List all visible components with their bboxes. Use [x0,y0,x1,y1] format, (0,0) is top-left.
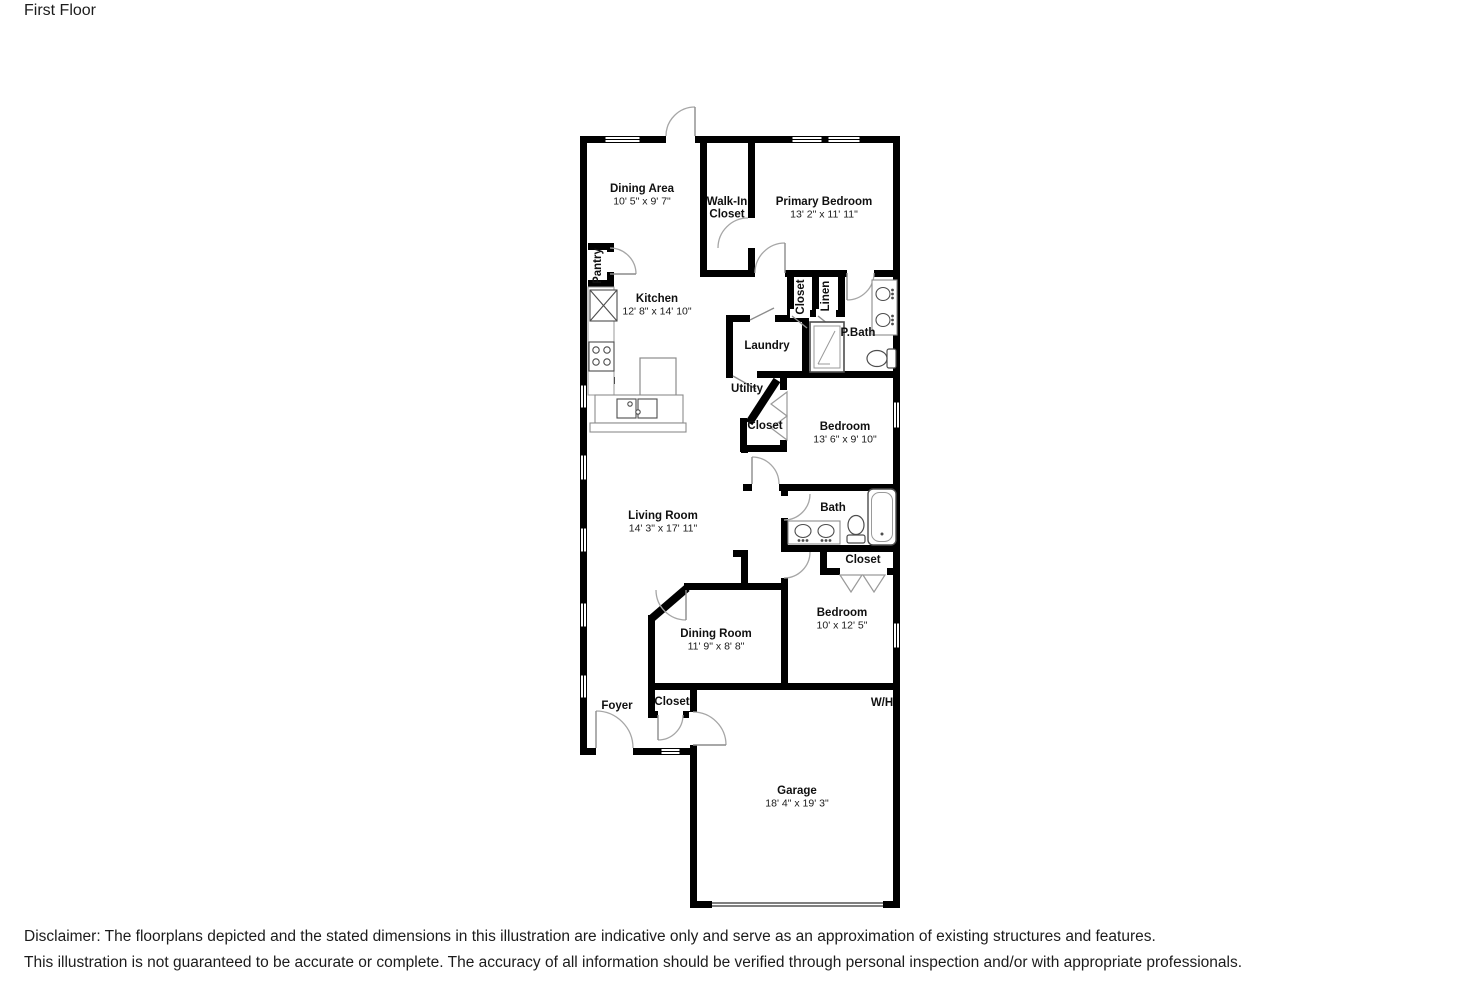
door-swing-icon [596,711,633,748]
disclaimer-line-1: Disclaimer: The floorplans depicted and … [24,928,1156,946]
window-icon [828,137,860,143]
window-icon [792,137,822,143]
room-label-linen: Linen [820,281,832,312]
room-label-living-room: Living Room [628,510,698,522]
door-swing-icon [718,218,748,248]
room-dims-dining-room: 11' 9" x 8' 8" [688,641,745,653]
window-icon [581,385,587,408]
refrigerator-icon [590,290,617,321]
kitchen-island [640,358,676,400]
room-label-laundry: Laundry [744,340,790,352]
disclaimer-line-2: This illustration is not guaranteed to b… [24,954,1242,972]
room-label-p-bath: P.Bath [841,327,876,339]
window-icon [894,623,900,648]
room-dims-primary-bedroom: 13' 2" x 11' 11" [790,209,858,221]
room-dims-living-room: 14' 3" x 17' 11" [629,523,698,535]
room-label-dining-room: Dining Room [680,628,752,640]
bifold-door-icon [863,575,885,592]
room-dims-bedroom-2: 10' x 12' 5" [817,620,868,632]
stove-icon [589,342,614,371]
window-icon [581,455,587,480]
window-icon [605,137,640,143]
room-label-closet-utility: Closet [747,420,782,432]
double-vanity-icon [872,280,897,335]
room-label-primary-bedroom: Primary Bedroom [776,196,873,208]
room-dims-garage: 18' 4" x 19' 3" [765,798,829,810]
bifold-door-icon [771,392,787,416]
room-label-dining-area: Dining Area [610,183,675,195]
double-vanity-icon [788,521,840,544]
toilet-icon [847,516,865,544]
room-dims-kitchen: 12' 8" x 14' 10" [622,306,692,318]
window-icon [894,402,900,428]
window-icon [581,603,587,627]
bathtub-icon [868,489,896,545]
window-icon [581,675,587,698]
room-dims-bedroom-1: 13' 6" x 9' 10" [813,434,877,446]
kitchen-sink-icon [590,395,686,432]
room-label-bath: Bath [820,502,846,514]
bifold-door-icon [840,575,862,592]
door-swing-icon [755,243,785,273]
room-dims-dining-area: 10' 5" x 9' 7" [613,196,671,208]
room-label-kitchen: Kitchen [636,293,678,305]
room-label-walk-in-closet: Closet [709,209,744,221]
room-label-bedroom-2: Bedroom [817,607,867,619]
toilet-icon [867,349,896,368]
door-swing-icon [666,107,695,136]
room-label-utility: Utility [731,383,764,395]
room-label-closet-bath: Closet [845,554,880,566]
room-label-closet-hall: Closet [795,279,807,314]
room-label-walk-in-closet: Walk-In [707,196,747,208]
room-label-bedroom-1: Bedroom [820,421,870,433]
room-label-foyer: Foyer [601,700,633,712]
room-label-closet-foyer: Closet [654,696,689,708]
door-swing-icon [752,457,779,484]
window-icon [661,749,680,755]
room-label-wh: W/H [871,697,893,709]
room-label-pantry: Pantry [592,248,604,284]
shower-icon [810,322,844,372]
room-label-garage: Garage [777,785,817,797]
floorplan: Dining Area10' 5" x 9' 7"Walk-InClosetPr… [0,0,1482,1000]
window-icon [581,528,587,552]
